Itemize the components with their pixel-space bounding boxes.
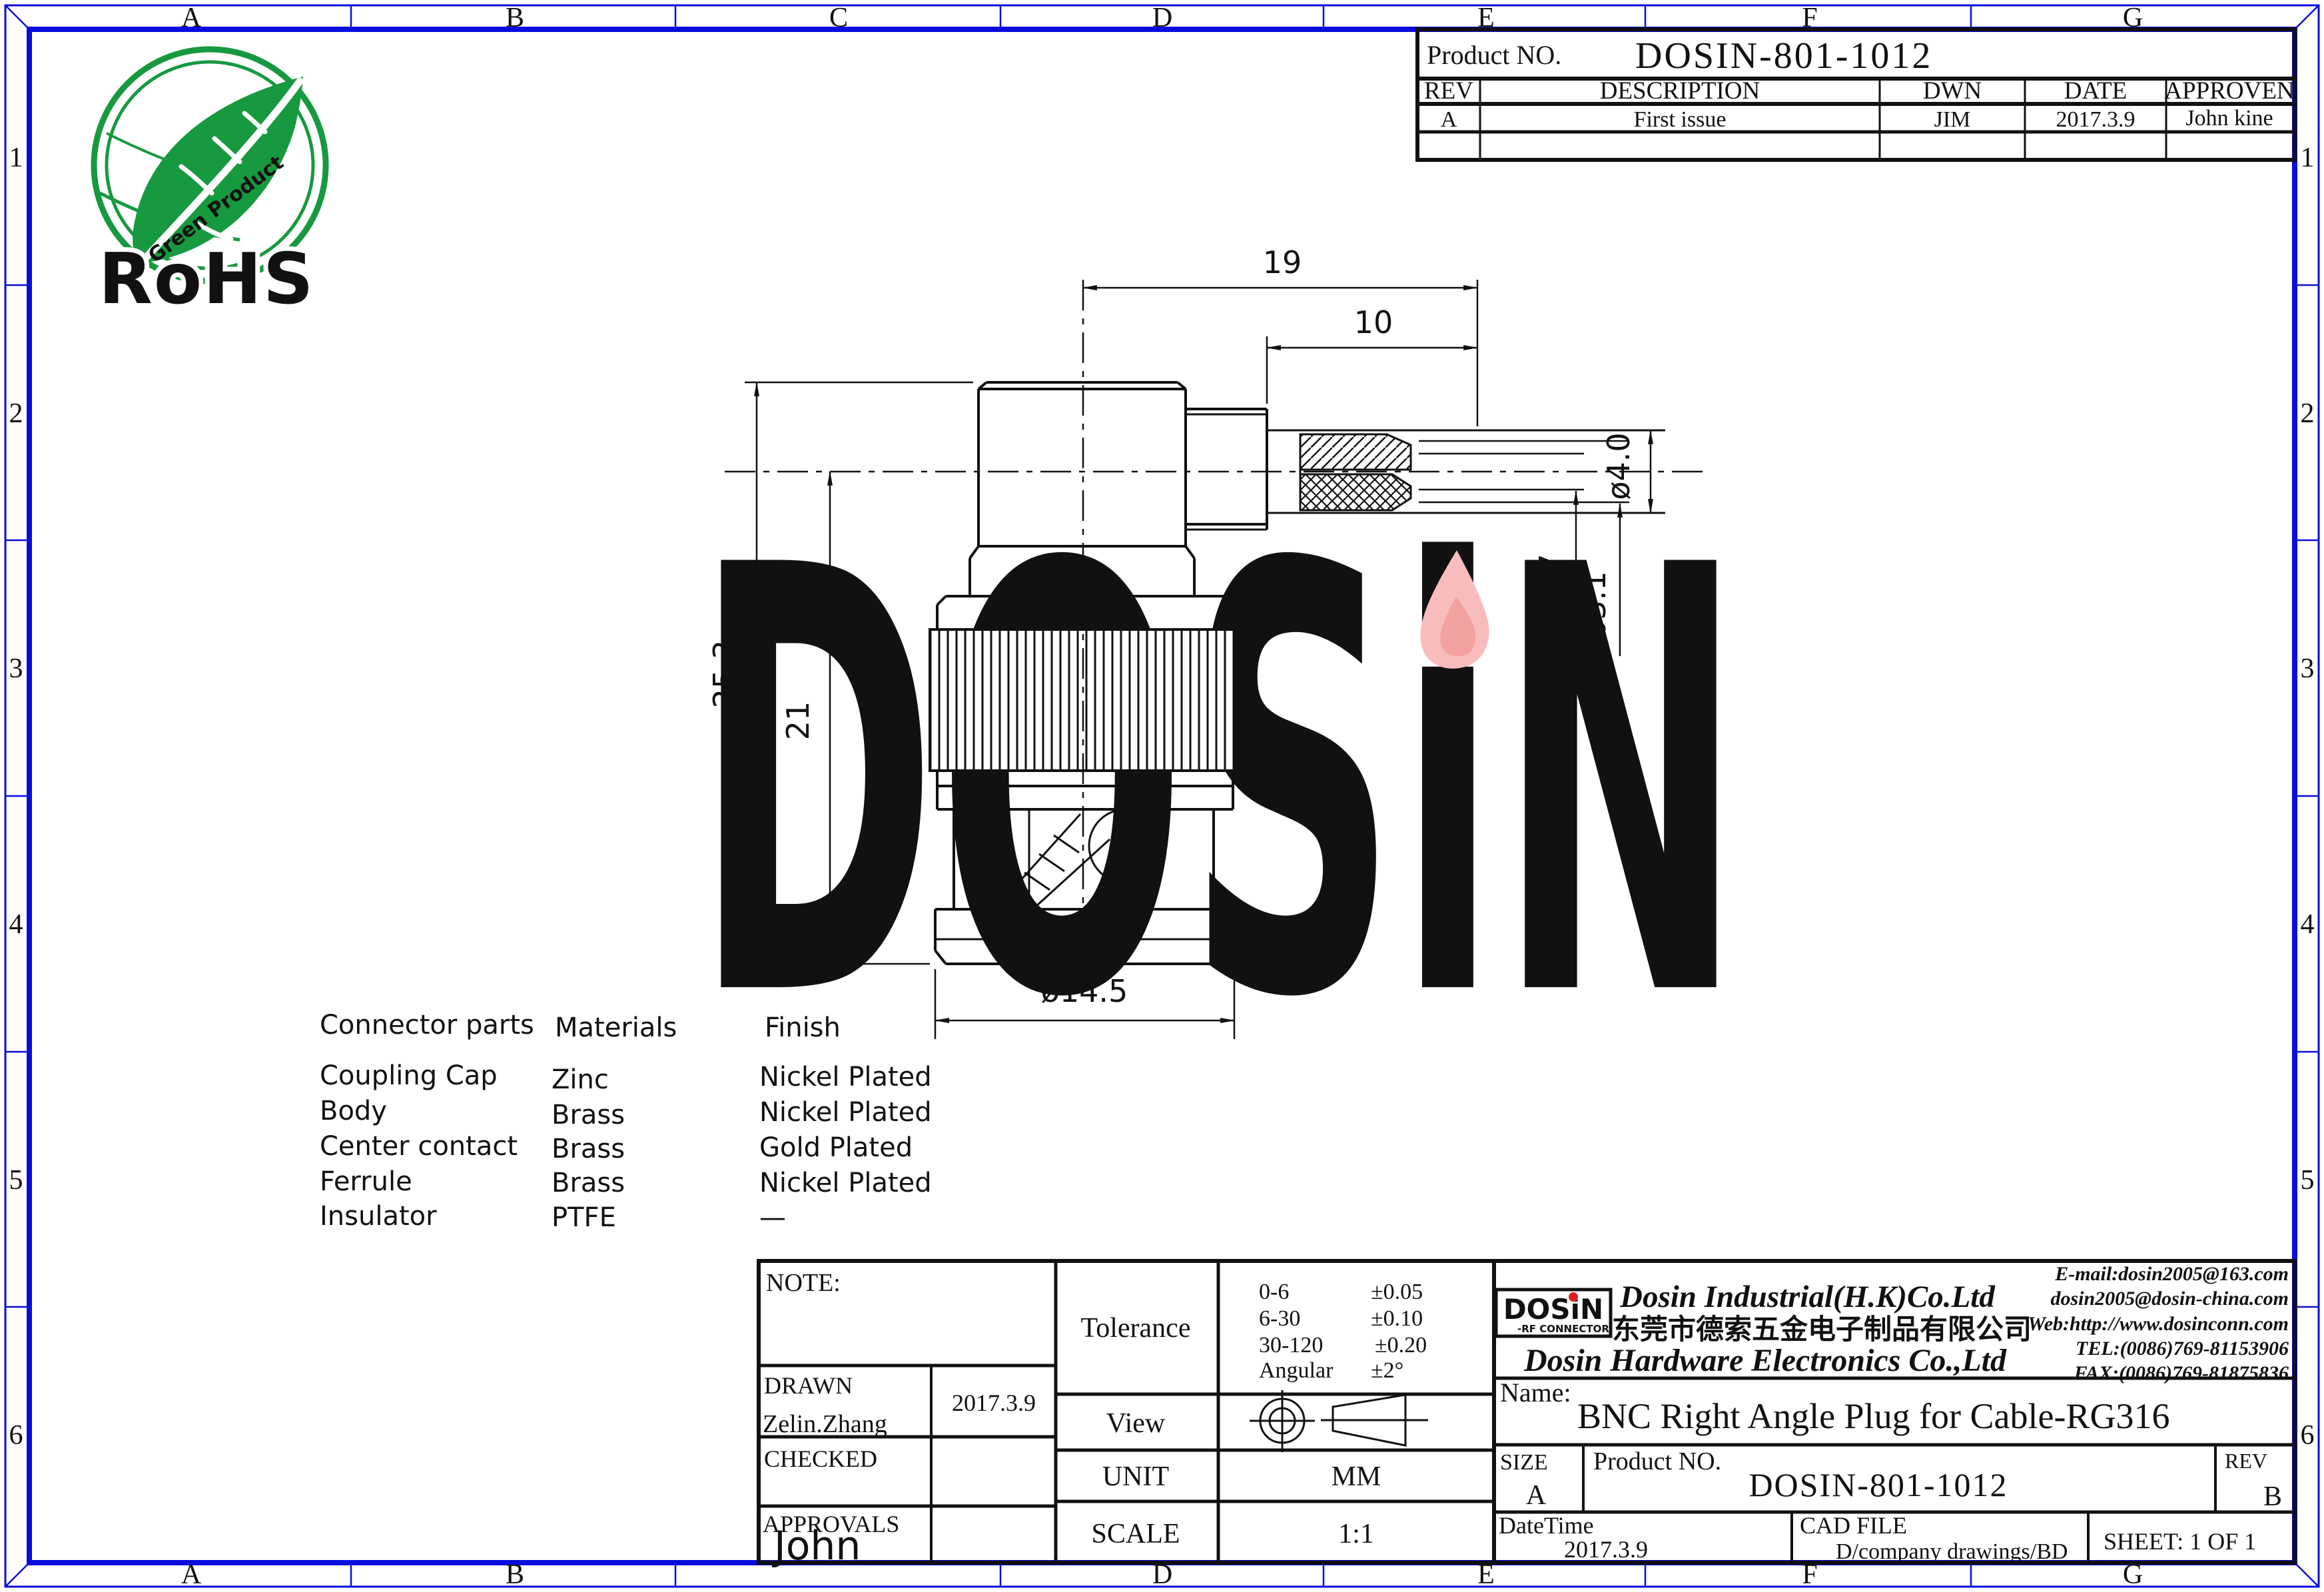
dim-dia-cable: ø4.0 xyxy=(1601,432,1637,500)
dim-dia-insulator: ø3.1 xyxy=(1577,571,1613,638)
material-part: Coupling Cap xyxy=(320,1060,498,1091)
grid-col-a-top: A xyxy=(181,3,202,33)
material-finish: Gold Plated xyxy=(759,1132,913,1163)
size-value: A xyxy=(1526,1480,1547,1511)
checked-label: CHECKED xyxy=(764,1445,877,1472)
grid-row-3-left: 3 xyxy=(9,653,23,684)
drawing-sheet: A B C D E F G A B D E F G 1 2 3 4 5 6 1 … xyxy=(0,0,2324,1592)
dim-dia-cap: ø14.5 xyxy=(1041,973,1128,1009)
sheet-label: SHEET: 1 OF 1 xyxy=(2104,1528,2256,1555)
tolerance-label: Tolerance xyxy=(1081,1313,1191,1344)
dim-height-total: 25.3 xyxy=(707,640,743,708)
approven-value: John kine xyxy=(2185,106,2273,131)
dim-height-body: 21 xyxy=(780,701,816,741)
date-value: 2017.3.9 xyxy=(2056,107,2135,132)
tolerance-range: 30-120 xyxy=(1259,1333,1323,1358)
note-label: NOTE: xyxy=(766,1269,841,1297)
grid-row-4-right: 4 xyxy=(2301,909,2315,940)
materials-col-parts: Connector parts xyxy=(320,1010,534,1040)
title-block: NOTE: DRAWN Zelin.Zhang 2017.3.9 CHECKED… xyxy=(759,1261,2295,1569)
drawn-label: DRAWN xyxy=(764,1372,853,1399)
material-part: Insulator xyxy=(320,1201,437,1232)
material-part: Body xyxy=(320,1096,387,1126)
grid-col-d-top: D xyxy=(1152,3,1172,33)
rohs-logo: Green Product RoHS xyxy=(94,49,326,320)
drawn-date: 2017.3.9 xyxy=(952,1390,1036,1416)
company-email1: E-mail:dosin2005@163.com xyxy=(2054,1263,2289,1285)
material-material: PTFE xyxy=(552,1202,616,1233)
dwn-value: JIM xyxy=(1934,107,1971,132)
material-finish: Nickel Plated xyxy=(759,1062,932,1092)
projection-view-icon xyxy=(1250,1390,1428,1452)
materials-row: Insulator PTFE — xyxy=(320,1201,786,1233)
size-label: SIZE xyxy=(1500,1450,1548,1475)
material-finish: Nickel Plated xyxy=(759,1097,932,1128)
dim-dia-pin: ø1.7 xyxy=(1533,554,1569,621)
tolerance-value: ±0.10 xyxy=(1371,1306,1423,1331)
scale-label: SCALE xyxy=(1091,1519,1180,1549)
material-material: Zinc xyxy=(552,1064,609,1095)
part-product-label: Product NO. xyxy=(1593,1447,1721,1475)
company-name-en: Dosin Industrial(H.K)Co.Ltd xyxy=(1619,1280,1996,1314)
material-part: Center contact xyxy=(320,1131,518,1162)
company-logo-text: DOSiN xyxy=(1503,1293,1603,1326)
materials-row: Center contact Brass Gold Plated xyxy=(320,1131,913,1164)
grid-row-5-left: 5 xyxy=(9,1165,23,1196)
watermark: DOSiN xyxy=(694,443,1743,1126)
company-block: DOSiN -RF CONNECTOR Dosin Industrial(H.K… xyxy=(1496,1263,2289,1384)
material-material: Brass xyxy=(552,1134,625,1164)
logo-dot-icon xyxy=(1569,1292,1578,1302)
part-product-no: DOSIN-801-1012 xyxy=(1748,1466,2008,1503)
company-name-cn: 东莞市德索五金电子制品有限公司 xyxy=(1612,1313,2032,1346)
materials-col-finish: Finish xyxy=(765,1012,841,1043)
unit-label: UNIT xyxy=(1102,1461,1169,1492)
company-fax: FAX:(0086)769-81875836 xyxy=(2074,1362,2289,1384)
dim-length-ferrule: 10 xyxy=(1354,304,1393,340)
company-logo-sub: -RF CONNECTOR xyxy=(1517,1323,1609,1335)
tolerance-range: Angular xyxy=(1259,1358,1334,1383)
material-finish: Nickel Plated xyxy=(759,1168,932,1198)
cadfile-value: D/company drawings/BD xyxy=(1836,1539,2068,1564)
dwn-col-header: DWN xyxy=(1923,77,1982,105)
datetime-label: DateTime xyxy=(1499,1512,1594,1539)
grid-row-2-right: 2 xyxy=(2301,398,2315,429)
watermark-text: DOSiN xyxy=(694,443,1743,1126)
company-name-en2: Dosin Hardware Electronics Co.,Ltd xyxy=(1523,1343,2007,1378)
company-email2: dosin2005@dosin-china.com xyxy=(2050,1288,2289,1310)
tolerance-value: ±0.20 xyxy=(1375,1333,1427,1358)
materials-col-materials: Materials xyxy=(555,1012,677,1043)
material-material: Brass xyxy=(552,1100,625,1130)
grid-row-1-right: 1 xyxy=(2301,143,2315,173)
grid-col-b-bottom: B xyxy=(506,1559,524,1590)
grid-row-3-right: 3 xyxy=(2301,653,2315,684)
scale-value: 1:1 xyxy=(1338,1519,1374,1549)
revision-table: Product NO. DOSIN-801-1012 REV DESCRIPTI… xyxy=(1417,29,2295,160)
materials-row: Body Brass Nickel Plated xyxy=(320,1096,932,1130)
product-no-label: Product NO. xyxy=(1427,40,1561,70)
company-tel: TEL:(0086)769-81153906 xyxy=(2076,1338,2289,1360)
grid-row-6-right: 6 xyxy=(2301,1420,2315,1451)
tolerance-range: 6-30 xyxy=(1259,1306,1300,1331)
view-label: View xyxy=(1106,1408,1166,1439)
rev-label: REV xyxy=(2225,1449,2267,1473)
rev-col-header: REV xyxy=(1424,77,1473,105)
material-material: Brass xyxy=(552,1168,625,1198)
unit-value: MM xyxy=(1332,1461,1381,1492)
datetime-value: 2017.3.9 xyxy=(1564,1536,1648,1563)
rohs-title: RoHS xyxy=(99,238,315,320)
rev-value: B xyxy=(2263,1481,2282,1512)
materials-row: Coupling Cap Zinc Nickel Plated xyxy=(320,1060,932,1095)
tolerance-range: 0-6 xyxy=(1259,1280,1289,1304)
tolerance-value: ±2° xyxy=(1371,1358,1403,1383)
grid-col-b-top: B xyxy=(506,3,524,33)
grid-row-5-right: 5 xyxy=(2301,1165,2315,1196)
material-part: Ferrule xyxy=(320,1166,412,1197)
product-no-value: DOSIN-801-1012 xyxy=(1635,35,1932,77)
grid-row-1-left: 1 xyxy=(9,143,23,173)
grid-col-a-bottom: A xyxy=(181,1559,202,1590)
grid-row-6-left: 6 xyxy=(9,1420,23,1451)
grid-row-4-left: 4 xyxy=(9,909,23,940)
description-value: First issue xyxy=(1634,107,1727,132)
name-label: Name: xyxy=(1500,1378,1571,1407)
tolerance-value: ±0.05 xyxy=(1371,1280,1423,1304)
material-finish: — xyxy=(759,1202,786,1233)
name-value: BNC Right Angle Plug for Cable-RG316 xyxy=(1577,1396,2170,1436)
approven-col-header: APPROVEN xyxy=(2164,77,2294,105)
dim-length-total: 19 xyxy=(1263,244,1302,280)
description-col-header: DESCRIPTION xyxy=(1600,77,1760,105)
approvals-signature: John xyxy=(771,1523,861,1569)
grid-col-c-top: C xyxy=(829,3,848,33)
date-col-header: DATE xyxy=(2064,77,2128,105)
company-web: Web:http://www.dosinconn.com xyxy=(2028,1313,2289,1335)
rev-value: A xyxy=(1441,107,1457,132)
grid-row-2-left: 2 xyxy=(9,398,23,429)
drawn-name: Zelin.Zhang xyxy=(763,1410,887,1438)
cadfile-label: CAD FILE xyxy=(1800,1512,1907,1539)
materials-row: Ferrule Brass Nickel Plated xyxy=(320,1166,932,1198)
